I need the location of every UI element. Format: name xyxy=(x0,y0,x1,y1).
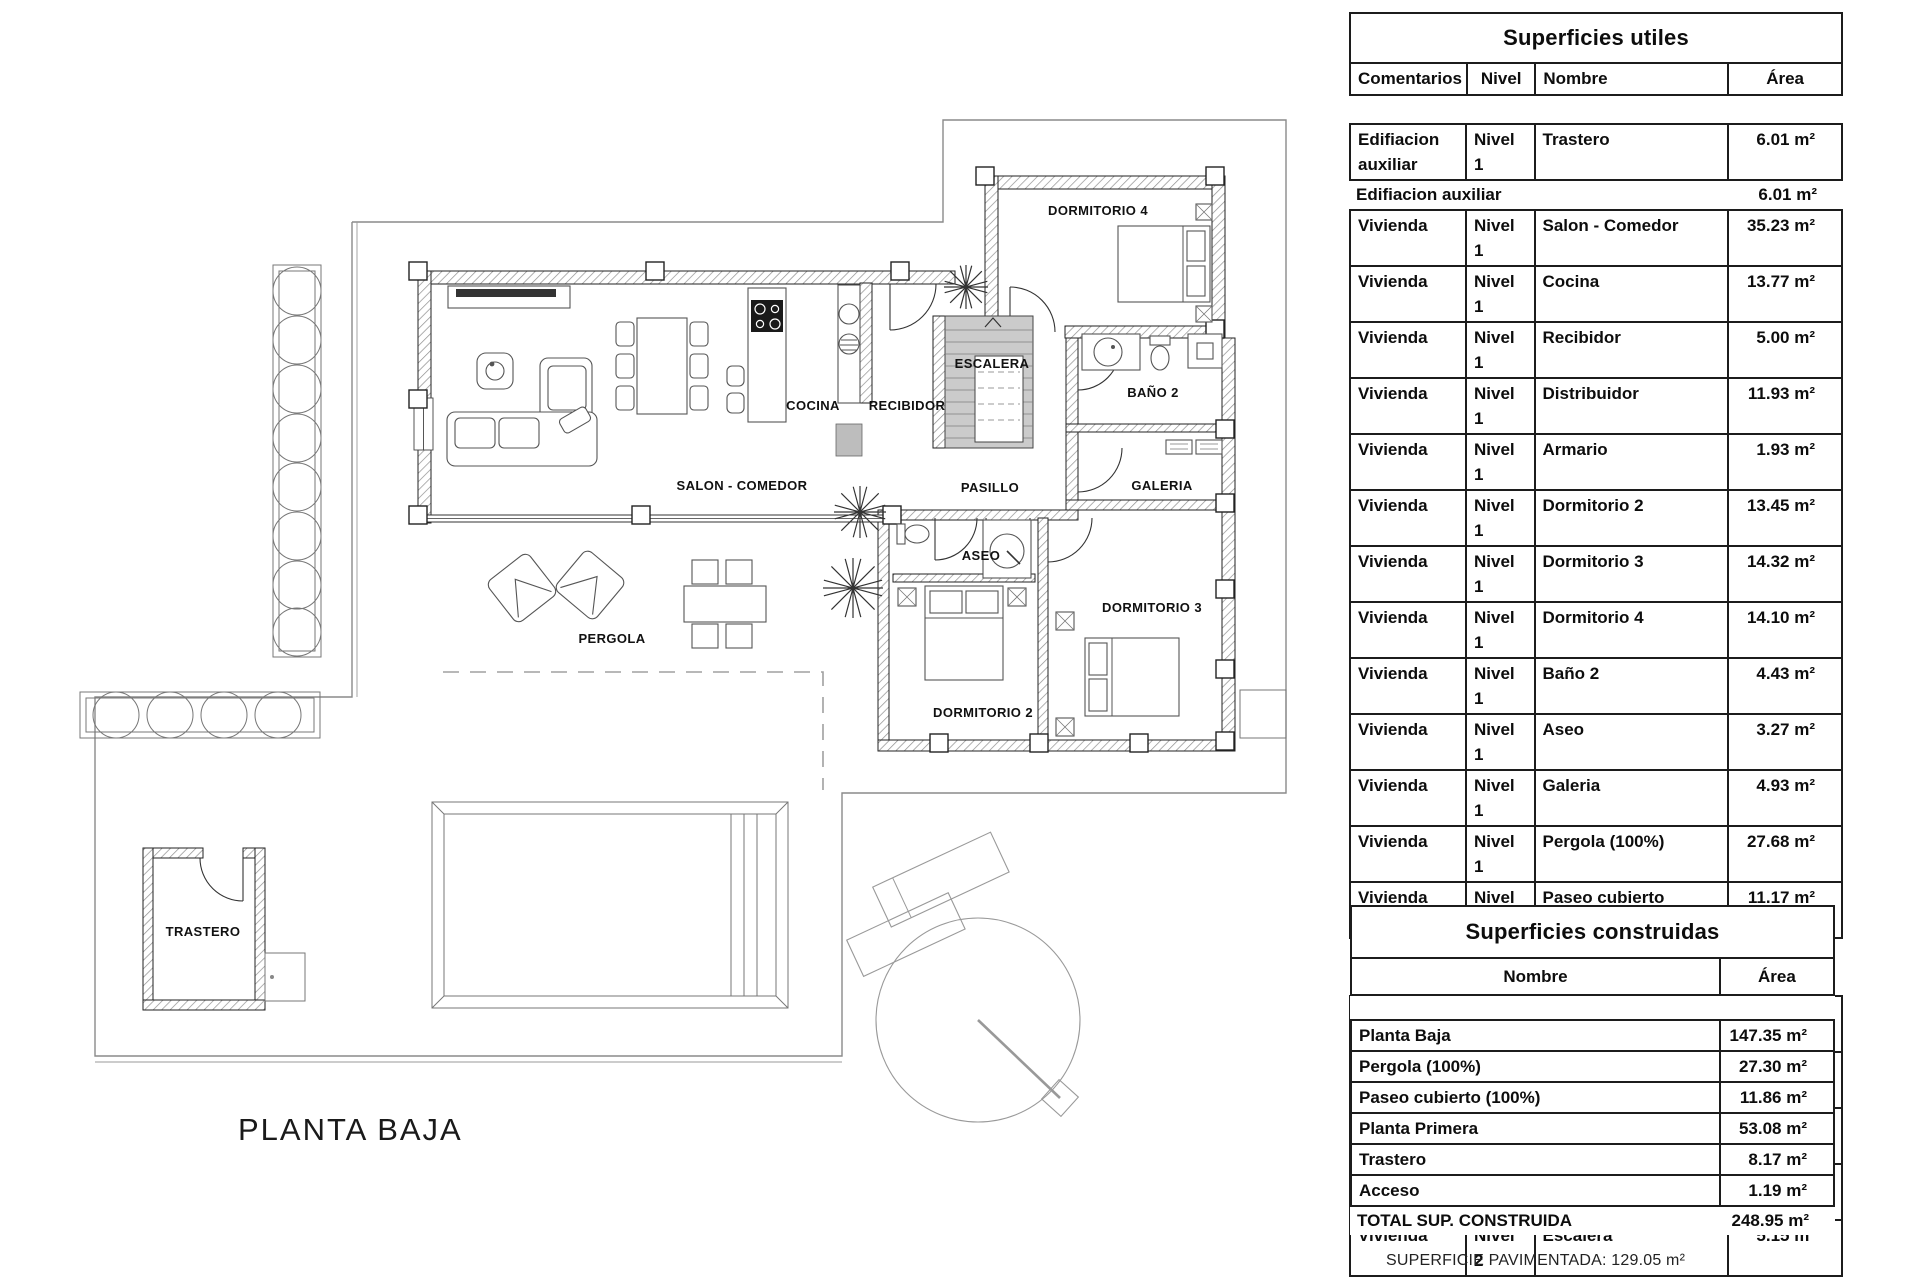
label-trastero: TRASTERO xyxy=(166,924,241,939)
table-cell-area: 13.77 m² xyxy=(1727,267,1841,321)
pergola-lounge-chairs xyxy=(486,548,627,624)
table-row: ViviendaNivel 1Pergola (100%)27.68 m² xyxy=(1351,825,1841,881)
superficies-construidas-table: Superficies construidas Nombre Área Plan… xyxy=(1350,905,1835,1235)
total-row: TOTAL SUP. CONSTRUIDA248.95 m² xyxy=(1350,1207,1835,1235)
table-cell-area: 4.93 m² xyxy=(1727,771,1841,825)
label-bano2: BAÑO 2 xyxy=(1127,385,1179,400)
table-row: ViviendaNivel 1Aseo3.27 m² xyxy=(1351,713,1841,769)
column-header-comentarios: Comentarios xyxy=(1351,64,1466,94)
side-table xyxy=(477,353,513,389)
label-pergola: PERGOLA xyxy=(578,631,645,646)
superficies-construidas-rows: Planta Baja147.35 m²Pergola (100%)27.30 … xyxy=(1350,1019,1835,1235)
table-cell-nivel: Nivel 1 xyxy=(1465,547,1533,601)
table-cell-area: 8.17 m² xyxy=(1719,1145,1833,1174)
table-cell-nivel: Nivel 1 xyxy=(1465,379,1533,433)
superficies-utiles-title: Superficies utiles xyxy=(1349,12,1843,64)
column-header-nombre: Nombre xyxy=(1534,64,1727,94)
table-cell-area: 13.45 m² xyxy=(1727,491,1841,545)
table-cell-nombre: Paseo cubierto (100%) xyxy=(1352,1083,1719,1112)
table-cell-nivel: Nivel 1 xyxy=(1465,491,1533,545)
acceso-step xyxy=(1240,690,1286,738)
table-cell-comentarios: Vivienda xyxy=(1351,211,1465,265)
tv-unit xyxy=(448,286,570,308)
planter-strip-horizontal xyxy=(80,692,320,738)
table-row: ViviendaNivel 1Distribuidor11.93 m² xyxy=(1351,377,1841,433)
summary-label: TOTAL SUP. CONSTRUIDA xyxy=(1350,1211,1694,1231)
superficies-construidas-header: Nombre Área xyxy=(1350,959,1835,996)
table-cell-nombre: Cocina xyxy=(1534,267,1727,321)
subtotal-row: Edifiacion auxiliar6.01 m² xyxy=(1349,181,1843,209)
table-cell-area: 147.35 m² xyxy=(1719,1021,1833,1050)
table-cell-comentarios: Vivienda xyxy=(1351,267,1465,321)
column-header-nombre: Nombre xyxy=(1352,959,1719,994)
superficies-utiles-header: Comentarios Nivel Nombre Área xyxy=(1349,64,1843,96)
table-cell-area: 1.93 m² xyxy=(1727,435,1841,489)
plan-title: PLANTA BAJA xyxy=(238,1112,463,1147)
table-cell-area: 11.86 m² xyxy=(1719,1083,1833,1112)
label-galeria: GALERIA xyxy=(1131,478,1193,493)
table-cell-nivel: Nivel 1 xyxy=(1465,771,1533,825)
summary-value: 248.95 m² xyxy=(1694,1211,1835,1231)
table-cell-nivel: Nivel 1 xyxy=(1465,827,1533,881)
label-salon: SALON - COMEDOR xyxy=(677,478,808,493)
table-cell-area: 3.27 m² xyxy=(1727,715,1841,769)
table-cell-area: 5.00 m² xyxy=(1727,323,1841,377)
bed-dormitorio2 xyxy=(898,586,1026,680)
table-cell-nivel: Nivel 1 xyxy=(1465,267,1533,321)
superficies-construidas-title: Superficies construidas xyxy=(1350,905,1835,959)
table-row: Planta Primera53.08 m² xyxy=(1352,1112,1833,1143)
table-cell-area: 27.68 m² xyxy=(1727,827,1841,881)
table-cell-area: 14.32 m² xyxy=(1727,547,1841,601)
galeria-appliances xyxy=(1166,440,1222,454)
page: DORMITORIO 4 ESCALERA BAÑO 2 COCINA RECI… xyxy=(0,0,1920,1280)
table-cell-comentarios: Vivienda xyxy=(1351,659,1465,713)
column-header-area: Área xyxy=(1727,64,1841,94)
label-escalera: ESCALERA xyxy=(955,356,1030,371)
table-cell-nombre: Dormitorio 2 xyxy=(1534,491,1727,545)
table-chunk: Edifiacion auxiliarNivel 1Trastero6.01 m… xyxy=(1349,123,1843,181)
planter-strip-vertical xyxy=(273,265,321,657)
table-cell-nombre: Baño 2 xyxy=(1534,659,1727,713)
bano2-fixtures xyxy=(1082,334,1222,370)
bed-dormitorio4 xyxy=(1118,204,1212,322)
label-aseo: ASEO xyxy=(962,548,1000,563)
table-cell-comentarios: Vivienda xyxy=(1351,827,1465,881)
table-row: ViviendaNivel 1Baño 24.43 m² xyxy=(1351,657,1841,713)
table-row: Edifiacion auxiliarNivel 1Trastero6.01 m… xyxy=(1351,125,1841,179)
table-cell-nivel: Nivel 1 xyxy=(1465,211,1533,265)
table-row: ViviendaNivel 1Armario1.93 m² xyxy=(1351,433,1841,489)
table-cell-nivel: Nivel 1 xyxy=(1465,323,1533,377)
table-cell-nivel: Nivel 1 xyxy=(1465,125,1533,179)
table-row: ViviendaNivel 1Recibidor5.00 m² xyxy=(1351,321,1841,377)
bed-dormitorio3 xyxy=(1056,612,1179,736)
table-cell-nombre: Salon - Comedor xyxy=(1534,211,1727,265)
column-header-nivel: Nivel xyxy=(1466,64,1534,94)
table-cell-nivel: Nivel 1 xyxy=(1465,715,1533,769)
pergola-dashed-outline xyxy=(443,672,823,790)
table-cell-nombre: Armario xyxy=(1534,435,1727,489)
label-cocina: COCINA xyxy=(786,398,840,413)
sun-loungers xyxy=(847,832,1009,976)
label-pasillo: PASILLO xyxy=(961,480,1019,495)
table-row: Planta Baja147.35 m² xyxy=(1352,1021,1833,1050)
table-cell-area: 27.30 m² xyxy=(1719,1052,1833,1081)
table-cell-nombre: Pergola (100%) xyxy=(1534,827,1727,881)
paved-surface-note: SUPERFICIE PAVIMENTADA: 129.05 m² xyxy=(1386,1252,1685,1270)
table-cell-nombre: Planta Primera xyxy=(1352,1114,1719,1143)
table-row: Acceso1.19 m² xyxy=(1352,1174,1833,1205)
table-chunk: ViviendaNivel 1Salon - Comedor35.23 m²Vi… xyxy=(1349,209,1843,939)
table-cell-nombre: Dormitorio 4 xyxy=(1534,603,1727,657)
table-cell-nombre: Trastero xyxy=(1534,125,1727,179)
table-cell-comentarios: Vivienda xyxy=(1351,491,1465,545)
table-cell-comentarios: Vivienda xyxy=(1351,435,1465,489)
label-dormitorio2: DORMITORIO 2 xyxy=(933,705,1033,720)
table-cell-nombre: Galeria xyxy=(1534,771,1727,825)
table-cell-nombre: Aseo xyxy=(1534,715,1727,769)
table-cell-nivel: Nivel 1 xyxy=(1465,603,1533,657)
table-row: Pergola (100%)27.30 m² xyxy=(1352,1050,1833,1081)
table-cell-comentarios: Vivienda xyxy=(1351,715,1465,769)
table-cell-comentarios: Vivienda xyxy=(1351,603,1465,657)
table-cell-area: 11.93 m² xyxy=(1727,379,1841,433)
table-row: ViviendaNivel 1Galeria4.93 m² xyxy=(1351,769,1841,825)
floor-plan: DORMITORIO 4 ESCALERA BAÑO 2 COCINA RECI… xyxy=(0,0,1345,1280)
table-cell-comentarios: Edifiacion auxiliar xyxy=(1351,125,1465,179)
dining-table xyxy=(616,318,708,414)
table-row: Paseo cubierto (100%)11.86 m² xyxy=(1352,1081,1833,1112)
table-cell-area: 6.01 m² xyxy=(1727,125,1841,179)
table-row: Trastero8.17 m² xyxy=(1352,1143,1833,1174)
summary-value: 6.01 m² xyxy=(1702,185,1843,205)
table-cell-comentarios: Vivienda xyxy=(1351,323,1465,377)
table-cell-area: 35.23 m² xyxy=(1727,211,1841,265)
staircase xyxy=(945,316,1033,448)
table-cell-nombre: Dormitorio 3 xyxy=(1534,547,1727,601)
summary-label: Edifiacion auxiliar xyxy=(1349,185,1702,205)
table-row: ViviendaNivel 1Salon - Comedor35.23 m² xyxy=(1351,211,1841,265)
table-cell-area: 1.19 m² xyxy=(1719,1176,1833,1205)
parasol xyxy=(876,918,1080,1122)
table-cell-area: 53.08 m² xyxy=(1719,1114,1833,1143)
table-cell-comentarios: Vivienda xyxy=(1351,547,1465,601)
table-cell-nombre: Trastero xyxy=(1352,1145,1719,1174)
swimming-pool xyxy=(432,802,788,1008)
label-dormitorio4: DORMITORIO 4 xyxy=(1048,203,1148,218)
table-cell-nombre: Pergola (100%) xyxy=(1352,1052,1719,1081)
table-cell-nombre: Planta Baja xyxy=(1352,1021,1719,1050)
table-cell-nivel: Nivel 1 xyxy=(1465,435,1533,489)
column-header-area: Área xyxy=(1719,959,1833,994)
pergola-table-set xyxy=(684,560,766,648)
table-row: ViviendaNivel 1Dormitorio 314.32 m² xyxy=(1351,545,1841,601)
table-cell-comentarios: Vivienda xyxy=(1351,771,1465,825)
label-dormitorio3: DORMITORIO 3 xyxy=(1102,600,1202,615)
table-row: ViviendaNivel 1Dormitorio 414.10 m² xyxy=(1351,601,1841,657)
table-row: ViviendaNivel 1Cocina13.77 m² xyxy=(1351,265,1841,321)
table-chunk: Planta Baja147.35 m²Pergola (100%)27.30 … xyxy=(1350,1019,1835,1207)
table-cell-area: 14.10 m² xyxy=(1727,603,1841,657)
table-cell-nivel: Nivel 1 xyxy=(1465,659,1533,713)
table-cell-nombre: Acceso xyxy=(1352,1176,1719,1205)
table-row: ViviendaNivel 1Dormitorio 213.45 m² xyxy=(1351,489,1841,545)
table-cell-nombre: Recibidor xyxy=(1534,323,1727,377)
label-recibidor: RECIBIDOR xyxy=(869,398,946,413)
sofa xyxy=(447,358,597,466)
table-cell-comentarios: Vivienda xyxy=(1351,379,1465,433)
table-cell-area: 4.43 m² xyxy=(1727,659,1841,713)
kitchen-island xyxy=(727,288,786,422)
kitchen-counter xyxy=(836,285,862,456)
table-cell-nombre: Distribuidor xyxy=(1534,379,1727,433)
